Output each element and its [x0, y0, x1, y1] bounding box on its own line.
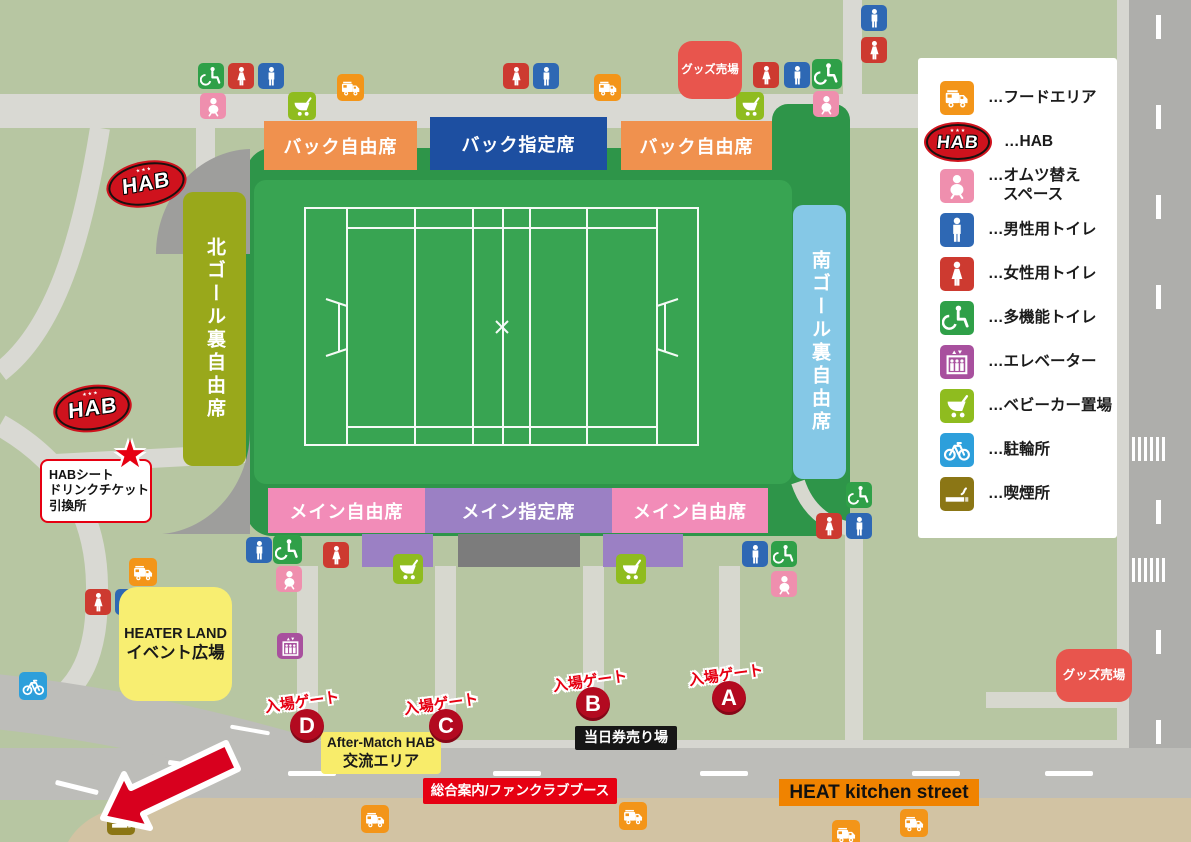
legend-item-hab: ★★★HAB…HAB [918, 122, 1117, 162]
man-icon [533, 63, 559, 89]
legend-item-wheelchair: …多機能トイレ [918, 298, 1117, 338]
gate-d-marker: D [290, 709, 324, 743]
hab-logo: ★★★HAB [926, 124, 990, 160]
stand-main-reserved: メイン指定席 [425, 488, 612, 533]
legend-item-label: …駐輪所 [988, 441, 1050, 460]
stand-back-free-left: バック自由席 [264, 121, 417, 170]
wheelchair-icon [273, 535, 302, 564]
stand-south-goal-free: 南ゴール裏自由席 [793, 205, 846, 479]
info-fanclub-booth-label: 総合案内/ファンクラブブース [431, 783, 610, 800]
smoking-icon [940, 477, 974, 511]
wheelchair-icon [846, 482, 872, 508]
hab-seat-exchange-label: ドリンクチケット [49, 483, 149, 499]
day-ticket-booth-label: 当日券売り場 [584, 729, 668, 747]
stroller-icon [616, 554, 646, 584]
elevator-icon [277, 633, 303, 659]
man-icon [861, 5, 887, 31]
legend-item-label: …喫煙所 [988, 485, 1050, 504]
woman-icon [85, 589, 111, 615]
legend-item-smoking: …喫煙所 [918, 474, 1117, 514]
woman-icon [228, 63, 254, 89]
woman-icon [753, 62, 779, 88]
gate-a-marker: A [712, 681, 746, 715]
foodtruck-icon [832, 820, 860, 842]
gate-c-marker: C [429, 709, 463, 743]
legend-item-foodtruck: …フードエリア [918, 78, 1117, 118]
hab-seat-exchange-label: HABシート [49, 468, 114, 484]
woman-icon [940, 257, 974, 291]
man-icon [246, 537, 272, 563]
wheelchair-icon [812, 59, 842, 89]
stand-back-reserved: バック指定席 [430, 117, 607, 170]
stand-main-free-right: メイン自由席 [612, 488, 768, 533]
legend-item-stroller: …ベビーカー置場 [918, 386, 1117, 426]
legend-item-label: …多機能トイレ [988, 309, 1097, 328]
heat-kitchen-street: HEAT kitchen street [779, 779, 979, 806]
man-icon [940, 213, 974, 247]
goods-shop-top-label: グッズ売場 [681, 63, 739, 77]
foodtruck-icon [619, 802, 647, 830]
stand-north-goal-free: 北ゴール裏自由席 [183, 192, 246, 466]
stroller-icon [288, 92, 316, 120]
bicycle-icon [940, 433, 974, 467]
woman-icon [861, 37, 887, 63]
goods-shop-top: グッズ売場 [678, 41, 742, 99]
wheelchair-icon [198, 63, 224, 89]
legend-item-label: …女性用トイレ [988, 265, 1097, 284]
after-match-area: After-Match HAB交流エリア [321, 732, 441, 774]
legend-item-label: …エレベーター [988, 353, 1097, 372]
man-icon [258, 63, 284, 89]
gate-b-marker: B [576, 687, 610, 721]
legend-item-label: …男性用トイレ [988, 221, 1097, 240]
stroller-icon [736, 92, 764, 120]
legend-item-bicycle: …駐輪所 [918, 430, 1117, 470]
elevator-icon [940, 345, 974, 379]
heater-land-label: イベント広場 [126, 643, 224, 663]
legend-item-label: …HAB [1004, 133, 1053, 152]
legend-item-baby: …オムツ替えスペース [918, 166, 1117, 206]
bicycle-icon [19, 672, 47, 700]
legend-item-elevator: …エレベーター [918, 342, 1117, 382]
baby-icon [200, 93, 226, 119]
woman-icon [816, 513, 842, 539]
foodtruck-icon [361, 805, 389, 833]
goods-shop-right: グッズ売場 [1056, 649, 1132, 702]
heater-land: HEATER LANDイベント広場 [119, 587, 232, 701]
day-ticket-booth: 当日券売り場 [575, 726, 677, 750]
stand-back-free-right: バック自由席 [621, 121, 772, 170]
entrance-arrow [85, 735, 255, 842]
seat-block [458, 534, 580, 567]
legend-panel: …フードエリア★★★HAB…HAB…オムツ替えスペース…男性用トイレ…女性用トイ… [918, 58, 1117, 538]
foodtruck-icon [337, 74, 364, 101]
legend-item-label: …オムツ替えスペース [988, 167, 1081, 204]
after-match-area-label: After-Match HAB [327, 735, 435, 752]
legend-item-label: …フードエリア [988, 89, 1097, 108]
hab-logo-text: HAB [936, 132, 980, 153]
foodtruck-icon [129, 558, 157, 586]
stroller-icon [393, 554, 423, 584]
hab-seat-exchange-label: 引換所 [49, 499, 87, 515]
info-fanclub-booth: 総合案内/ファンクラブブース [423, 778, 617, 804]
goods-shop-right-label: グッズ売場 [1063, 668, 1126, 684]
wheelchair-icon [940, 301, 974, 335]
heater-land-label: HEATER LAND [124, 625, 227, 643]
after-match-area-label: 交流エリア [343, 752, 419, 771]
legend-item-man: …男性用トイレ [918, 210, 1117, 250]
man-icon [846, 513, 872, 539]
hab-exchange-star: ★ [113, 436, 147, 474]
baby-icon [276, 566, 302, 592]
foodtruck-icon [940, 81, 974, 115]
woman-icon [503, 63, 529, 89]
heat-kitchen-street-label: HEAT kitchen street [789, 781, 968, 805]
foodtruck-icon [594, 74, 621, 101]
man-icon [784, 62, 810, 88]
stand-main-free-left: メイン自由席 [268, 488, 425, 533]
baby-icon [940, 169, 974, 203]
baby-icon [771, 571, 797, 597]
man-icon [742, 541, 768, 567]
legend-item-woman: …女性用トイレ [918, 254, 1117, 294]
hab-logo-text: HAB [68, 392, 118, 424]
wheelchair-icon [771, 541, 797, 567]
stadium-map: バック自由席バック指定席バック自由席メイン自由席メイン指定席メイン自由席北ゴール… [0, 0, 1191, 842]
foodtruck-icon [900, 809, 928, 837]
woman-icon [323, 542, 349, 568]
baby-icon [813, 91, 839, 117]
legend-item-label: …ベビーカー置場 [988, 397, 1112, 416]
stroller-icon [940, 389, 974, 423]
